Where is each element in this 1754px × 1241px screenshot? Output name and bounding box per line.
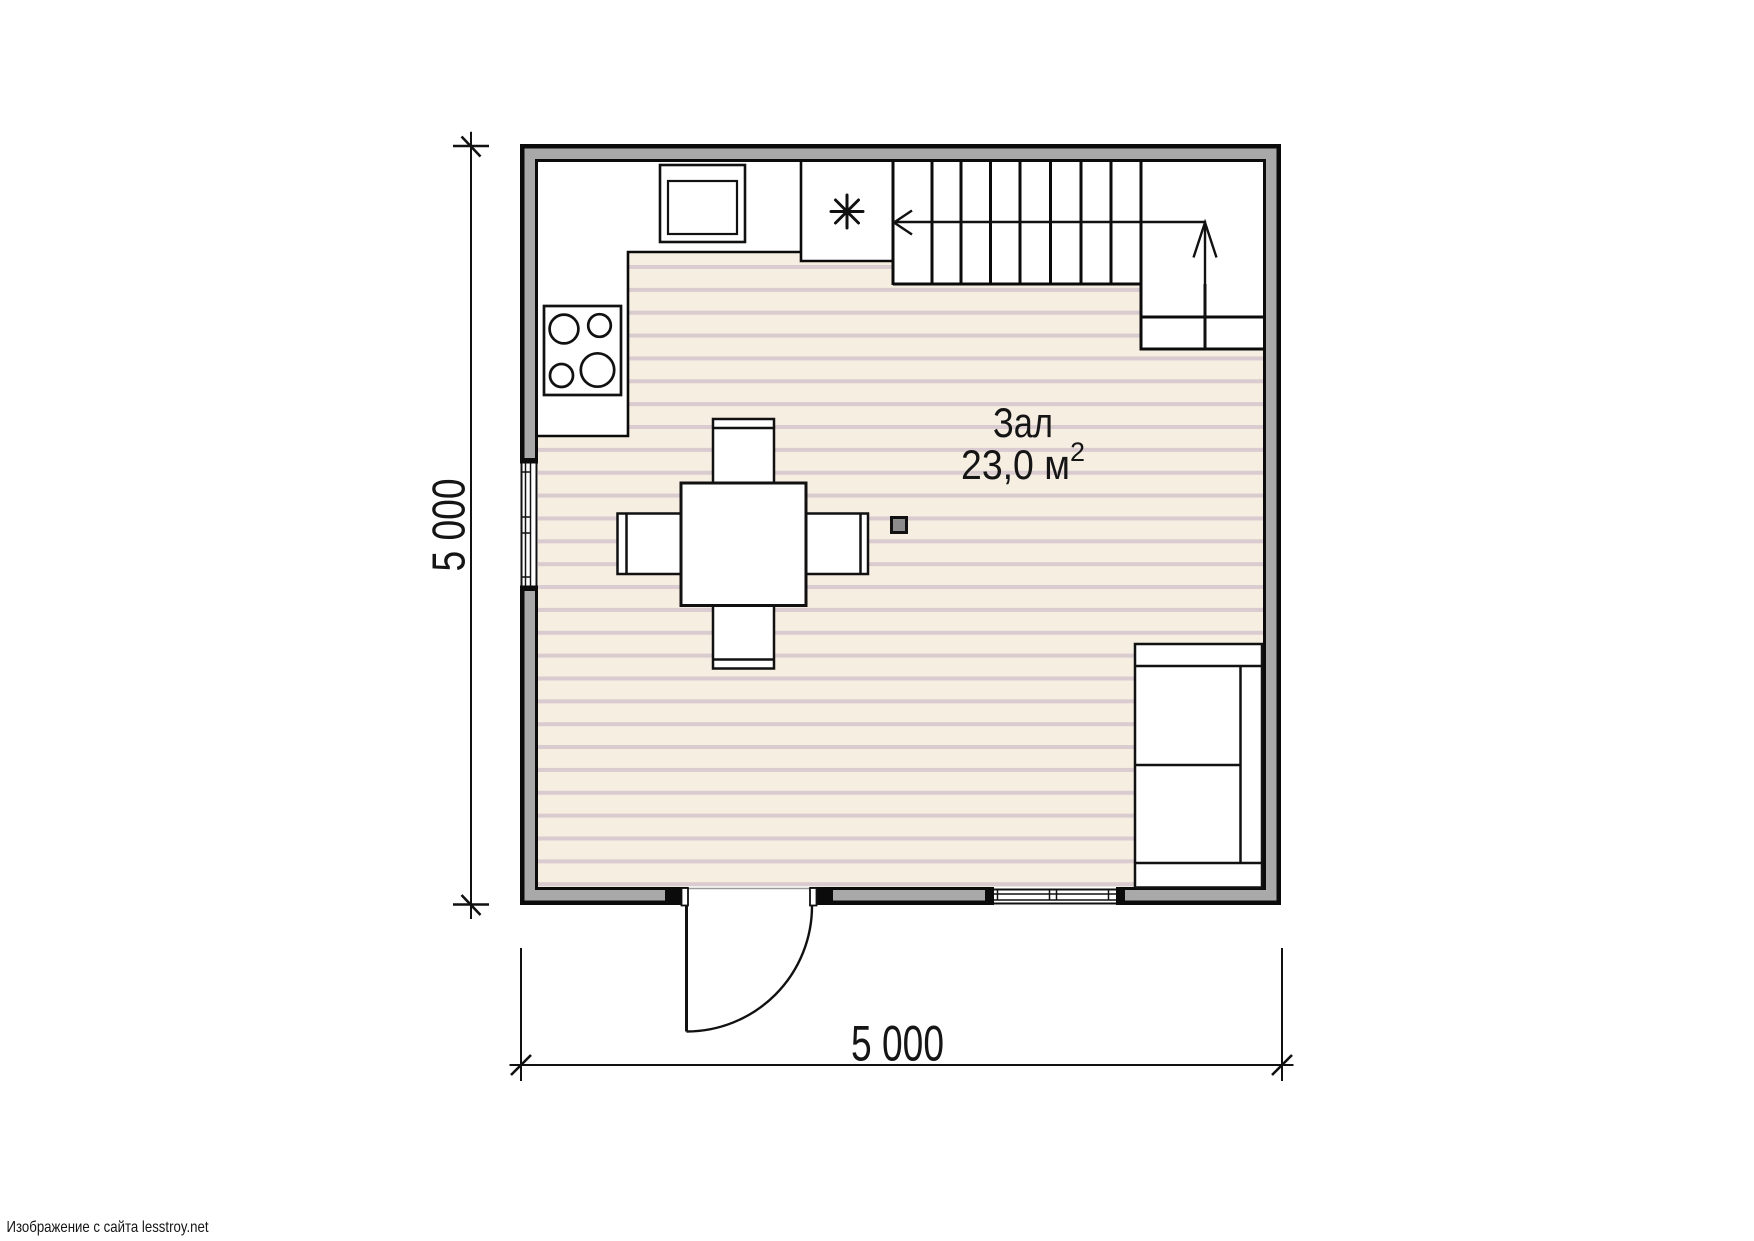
svg-text:Зал: Зал	[993, 399, 1053, 446]
svg-text:5 000: 5 000	[423, 479, 475, 572]
svg-text:5 000: 5 000	[851, 1016, 944, 1072]
svg-text:Изображение с сайта lesstroy.n: Изображение с сайта lesstroy.net	[7, 1219, 209, 1236]
svg-text:23,0 м: 23,0 м	[961, 441, 1070, 488]
svg-text:2: 2	[1070, 437, 1085, 467]
